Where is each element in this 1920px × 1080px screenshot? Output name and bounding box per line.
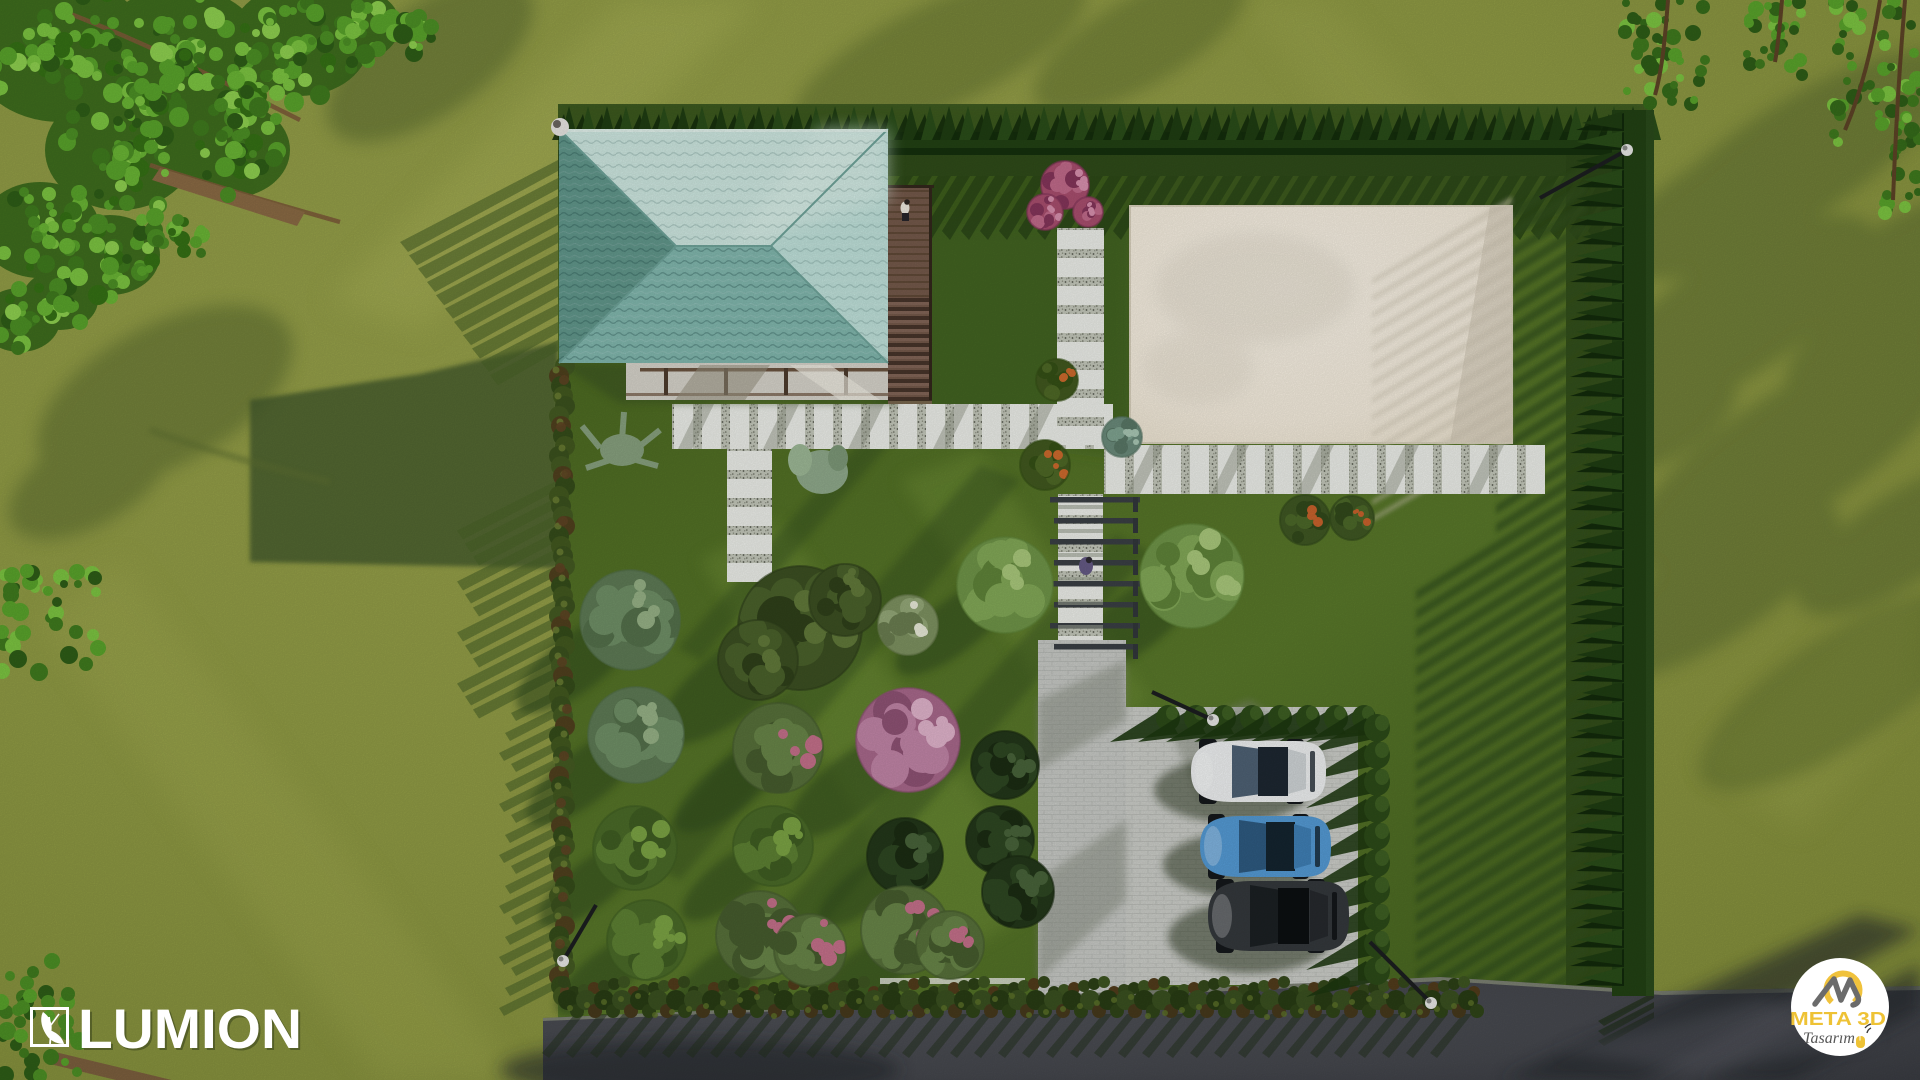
svg-text:Tasarım: Tasarım <box>1803 1030 1855 1047</box>
svg-text:META 3D: META 3D <box>1790 1009 1886 1029</box>
svg-text:LUMION: LUMION <box>78 997 302 1060</box>
